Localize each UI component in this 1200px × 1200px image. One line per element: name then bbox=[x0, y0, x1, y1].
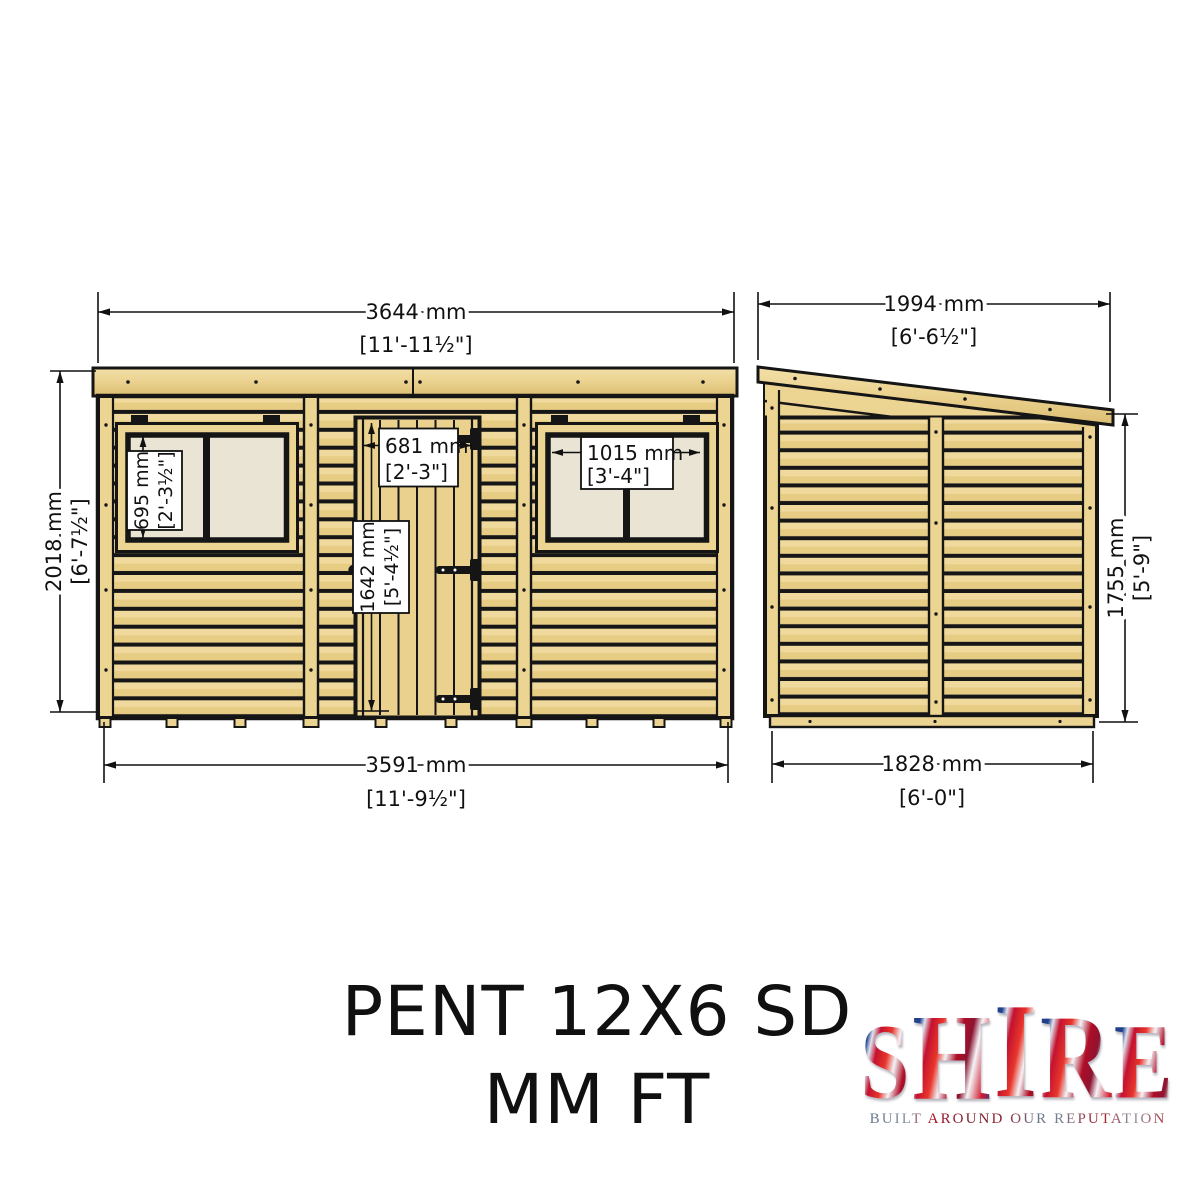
dim-text-window-right-ft: [3'-4"] bbox=[587, 464, 650, 488]
brand-letter-i: I bbox=[994, 998, 1040, 1106]
shed-technical-drawing: 3644 mm [11'-11½"] 2018 mm [6'-7½"] 3591… bbox=[0, 0, 1200, 1200]
dim-text-side-base-mm: 1828 mm bbox=[881, 752, 982, 776]
dim-window-left-height: 695 mm [2'-3½"] bbox=[127, 436, 182, 538]
dim-text-side-height-mm: 1755 mm bbox=[1104, 517, 1128, 618]
front-fascia-board bbox=[93, 368, 737, 396]
front-batten-right bbox=[517, 398, 531, 716]
dim-text-front-height-ft: [6'-7½"] bbox=[68, 498, 92, 584]
dim-text-window-right-mm: 1015 mm bbox=[587, 441, 683, 465]
brand-letter-e: E bbox=[1114, 1021, 1176, 1107]
dim-side-width-bottom: 1828 mm [6'-0"] bbox=[772, 731, 1093, 810]
side-corner-trim-right bbox=[1083, 427, 1095, 714]
dim-text-front-width-ft: [11'-11½"] bbox=[359, 333, 472, 357]
brand-logo: SHIRE BUILT AROUND OUR REPUTATION bbox=[860, 1018, 1176, 1128]
dim-text-front-base-ft: [11'-9½"] bbox=[366, 787, 466, 811]
brand-wordmark: SHIRE bbox=[860, 998, 1176, 1106]
brand-letter-h: H bbox=[912, 1008, 994, 1107]
dim-text-front-height-mm: 2018 mm bbox=[42, 491, 66, 592]
drawing-title: PENT 12X6 SD MM FT bbox=[250, 968, 944, 1145]
dim-side-height-right: 1755 mm [5'-9"] bbox=[1099, 414, 1154, 722]
units-label: MM FT bbox=[250, 1056, 944, 1144]
dim-text-window-left-ft: [2'-3½"] bbox=[155, 451, 177, 529]
side-floor-skid bbox=[770, 716, 1094, 727]
dim-text-side-width-ft: [6'-6½"] bbox=[891, 325, 977, 349]
dim-text-front-base-mm: 3591 mm bbox=[365, 753, 466, 777]
side-elevation bbox=[758, 367, 1113, 727]
dim-front-width-bottom: 3591 mm [11'-9½"] bbox=[104, 722, 728, 811]
dim-text-door-height-mm: 1642 mm bbox=[357, 521, 379, 612]
dim-front-width-top: 3644 mm [11'-11½"] bbox=[98, 292, 734, 363]
side-corner-trim-left bbox=[767, 386, 779, 714]
dim-text-side-base-ft: [6'-0"] bbox=[899, 786, 965, 810]
dim-text-side-width-mm: 1994 mm bbox=[883, 292, 984, 316]
front-batten-left bbox=[304, 398, 318, 716]
dim-text-front-width-mm: 3644 mm bbox=[365, 300, 466, 324]
side-batten-centre bbox=[929, 418, 943, 716]
dim-text-side-height-ft: [5'-9"] bbox=[1130, 535, 1154, 601]
dim-text-door-width-mm: 681 mm bbox=[385, 434, 469, 458]
dim-front-height-left: 2018 mm [6'-7½"] bbox=[42, 371, 96, 712]
front-elevation bbox=[93, 368, 737, 727]
dim-door-width: 681 mm [2'-3"] bbox=[363, 426, 472, 487]
brand-letter-s: S bbox=[860, 1021, 912, 1107]
front-corner-trim-left bbox=[100, 398, 113, 716]
product-name: PENT 12X6 SD bbox=[250, 968, 944, 1056]
dim-text-door-width-ft: [2'-3"] bbox=[385, 460, 448, 484]
dim-text-door-height-ft: [5'-4½"] bbox=[381, 528, 403, 606]
brand-letter-r: R bbox=[1040, 1011, 1114, 1107]
dim-text-window-left-mm: 695 mm bbox=[131, 451, 153, 530]
